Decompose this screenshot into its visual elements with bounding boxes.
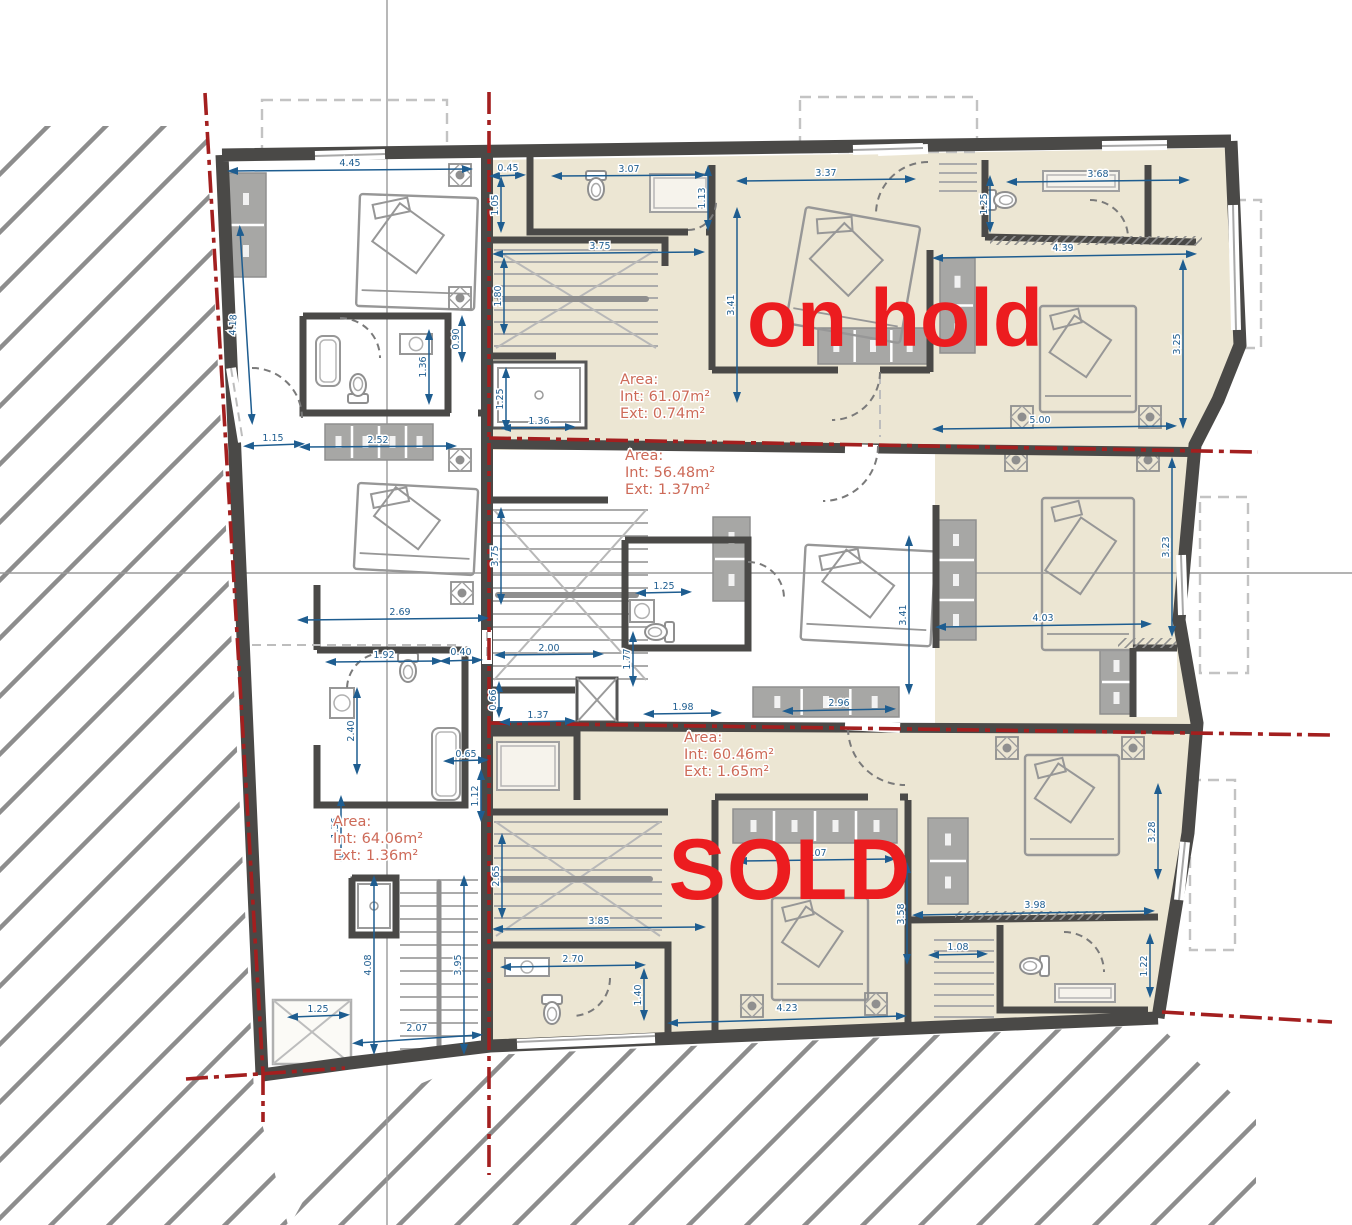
svg-text:4.18: 4.18 <box>227 314 239 336</box>
dimension: 1.98 <box>648 702 717 714</box>
wardrobe-symbol <box>928 818 968 904</box>
svg-text:Area:: Area: <box>333 814 371 830</box>
svg-text:Area:: Area: <box>620 372 658 388</box>
svg-text:4.08: 4.08 <box>363 954 374 975</box>
svg-text:1.92: 1.92 <box>373 650 394 661</box>
floor-plan-page: 4.454.181.152.520.901.362.691.920.402.40… <box>0 0 1352 1225</box>
svg-text:1.25: 1.25 <box>495 388 506 409</box>
dimension: 0.90 <box>451 320 462 358</box>
svg-text:2.07: 2.07 <box>406 1023 427 1034</box>
svg-text:1.13: 1.13 <box>697 187 708 208</box>
svg-text:3.95: 3.95 <box>453 954 464 975</box>
svg-text:3.25: 3.25 <box>1172 333 1183 354</box>
bathtub-symbol <box>432 728 460 800</box>
floor-plan-canvas: 4.454.181.152.520.901.362.691.920.402.40… <box>0 0 1352 1225</box>
counter-symbol <box>497 742 559 790</box>
svg-text:2.69: 2.69 <box>389 607 410 618</box>
svg-text:1.25: 1.25 <box>979 193 990 214</box>
bed-symbol <box>356 194 478 310</box>
dimension: 2.69 <box>302 607 484 620</box>
svg-text:Ext: 1.65m²: Ext: 1.65m² <box>684 764 769 780</box>
svg-text:5.00: 5.00 <box>1029 415 1050 426</box>
svg-text:1.80: 1.80 <box>493 285 504 306</box>
svg-text:1.36: 1.36 <box>418 356 429 377</box>
status-annotation-on-hold: on hold <box>747 273 1043 364</box>
svg-text:2.70: 2.70 <box>562 954 583 965</box>
glazed-partition <box>1118 638 1176 648</box>
svg-text:1.22: 1.22 <box>1139 955 1150 976</box>
dimension: 0.66 <box>488 686 499 713</box>
svg-text:Ext: 1.37m²: Ext: 1.37m² <box>625 482 710 498</box>
bed-symbol <box>354 483 478 575</box>
svg-text:3.98: 3.98 <box>1024 900 1045 911</box>
ceiling-fan-symbol <box>451 582 474 605</box>
sink-symbol <box>630 600 654 622</box>
svg-text:Area:: Area: <box>684 730 722 746</box>
svg-text:Int: 56.48m²: Int: 56.48m² <box>625 465 715 481</box>
svg-text:0.65: 0.65 <box>455 749 476 760</box>
svg-text:3.28: 3.28 <box>1147 821 1158 842</box>
wardrobe-symbol <box>753 687 899 717</box>
toilet-symbol <box>1020 956 1049 976</box>
svg-text:3.41: 3.41 <box>898 604 909 625</box>
svg-text:0.40: 0.40 <box>450 647 471 658</box>
svg-text:1.05: 1.05 <box>490 194 501 215</box>
svg-text:Int: 61.07m²: Int: 61.07m² <box>620 389 710 405</box>
counter-symbol <box>1055 984 1115 1002</box>
ceiling-fan-symbol <box>449 287 472 310</box>
svg-text:3.23: 3.23 <box>1161 536 1172 557</box>
ceiling-fan-symbol <box>449 164 472 187</box>
svg-text:3.68: 3.68 <box>1087 169 1108 180</box>
svg-text:3.85: 3.85 <box>588 916 609 927</box>
dimension: 3.41 <box>898 540 909 690</box>
svg-text:2.40: 2.40 <box>346 720 357 741</box>
svg-text:2.52: 2.52 <box>367 435 388 446</box>
ceiling-fan-symbol <box>449 449 472 472</box>
svg-text:3.37: 3.37 <box>815 168 836 179</box>
svg-text:1.25: 1.25 <box>307 1004 328 1015</box>
bed-symbol <box>801 545 936 647</box>
svg-text:1.15: 1.15 <box>262 433 283 444</box>
svg-text:4.03: 4.03 <box>1032 613 1053 624</box>
svg-text:Area:: Area: <box>625 448 663 464</box>
svg-text:0.45: 0.45 <box>497 163 518 174</box>
svg-text:2.65: 2.65 <box>491 865 502 886</box>
sink-symbol <box>400 334 432 354</box>
svg-text:1.37: 1.37 <box>527 710 548 721</box>
toilet-symbol <box>987 190 1016 210</box>
bathtub-symbol <box>316 336 340 386</box>
svg-text:1.77: 1.77 <box>622 648 633 669</box>
wardrobe-symbol <box>713 517 750 601</box>
toilet-symbol <box>398 653 418 682</box>
status-annotation-sold: SOLD <box>669 822 912 918</box>
toilet-symbol <box>645 622 674 642</box>
svg-text:4.45: 4.45 <box>339 158 360 169</box>
glazed-partition <box>990 236 1202 245</box>
area-label-unit-middle: Area:Int: 56.48m²Ext: 1.37m² <box>625 448 715 498</box>
svg-text:1.12: 1.12 <box>470 785 481 806</box>
sink-symbol <box>330 688 354 718</box>
svg-text:3.75: 3.75 <box>490 545 501 566</box>
svg-text:1.98: 1.98 <box>672 702 693 713</box>
svg-text:1.40: 1.40 <box>633 984 644 1005</box>
svg-text:3.41: 3.41 <box>726 294 737 315</box>
dimension: 1.15 <box>248 433 300 446</box>
dimension: 1.12 <box>470 774 481 817</box>
svg-text:4.39: 4.39 <box>1052 243 1073 254</box>
area-label-unit-left: Area:Int: 64.06m²Ext: 1.36m² <box>333 814 423 864</box>
svg-text:1.25: 1.25 <box>653 581 674 592</box>
svg-text:2.00: 2.00 <box>538 643 559 654</box>
svg-text:0.66: 0.66 <box>488 689 499 710</box>
svg-text:Int: 64.06m²: Int: 64.06m² <box>333 831 423 847</box>
svg-text:3.07: 3.07 <box>618 164 639 175</box>
toilet-symbol <box>542 995 562 1024</box>
svg-text:3.75: 3.75 <box>589 241 610 252</box>
dimension: 1.37 <box>504 710 571 722</box>
svg-text:0.90: 0.90 <box>451 328 462 349</box>
elevator-symbol <box>577 678 617 722</box>
wardrobe-symbol <box>936 520 976 640</box>
toilet-symbol <box>348 374 368 403</box>
svg-text:1.36: 1.36 <box>528 416 549 427</box>
svg-text:4.23: 4.23 <box>776 1003 797 1014</box>
dimension: 2.07 <box>357 1023 478 1043</box>
svg-text:1.08: 1.08 <box>947 942 968 953</box>
svg-text:2.96: 2.96 <box>828 698 849 709</box>
svg-text:Ext: 0.74m²: Ext: 0.74m² <box>620 406 705 422</box>
svg-text:Ext: 1.36m²: Ext: 1.36m² <box>333 848 418 864</box>
wardrobe-symbol <box>1100 650 1133 714</box>
svg-text:Int: 60.46m²: Int: 60.46m² <box>684 747 774 763</box>
